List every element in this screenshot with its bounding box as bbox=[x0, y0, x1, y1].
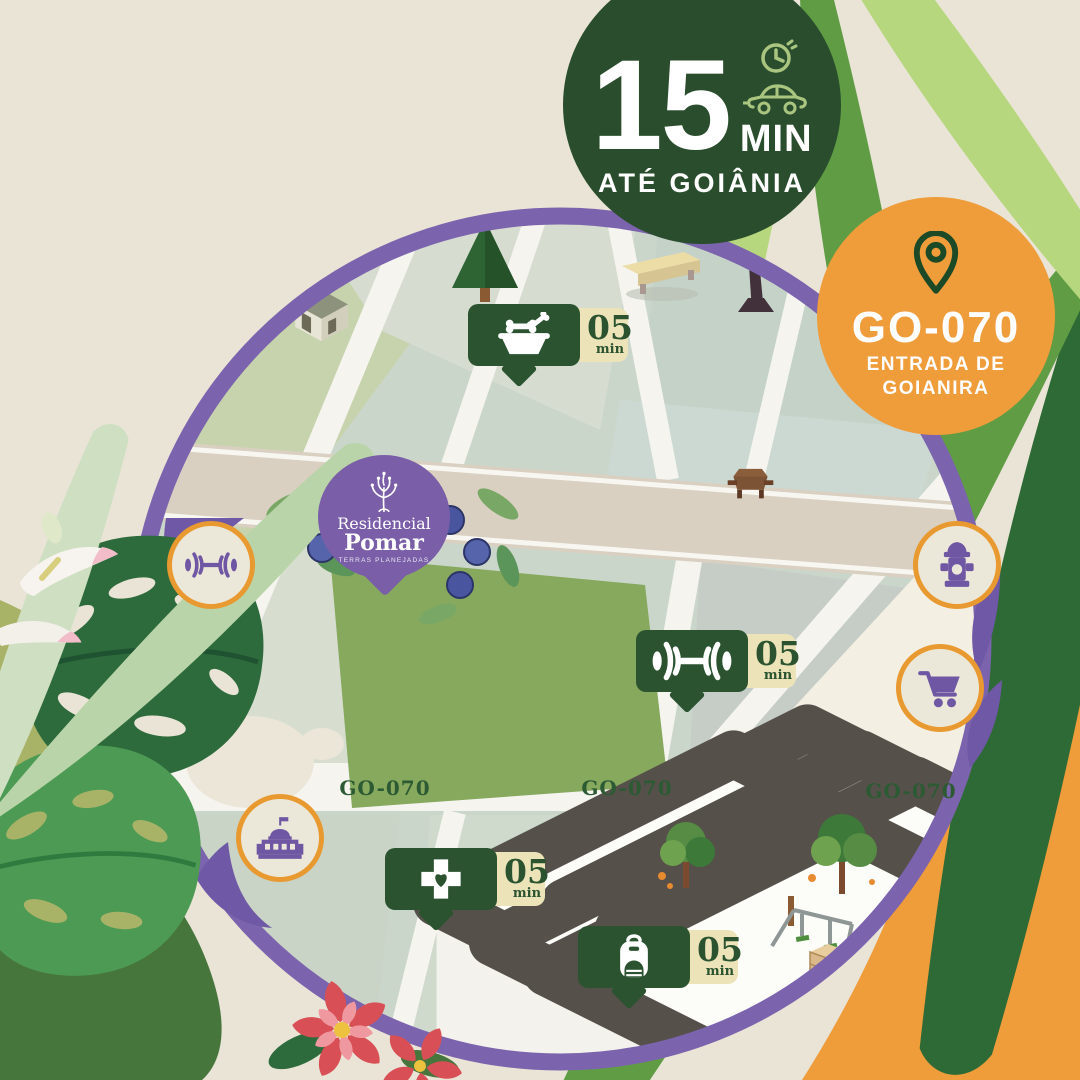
road-label-go070-3: GO-070 bbox=[856, 779, 966, 803]
tree-logo-icon bbox=[359, 470, 409, 514]
marker-health: 05 min bbox=[385, 848, 547, 940]
poi-fire-hydrant bbox=[913, 521, 1001, 609]
marker-pet-place: 05 min bbox=[468, 304, 630, 396]
medical-cross-heart-icon bbox=[416, 854, 466, 904]
dumbbell-icon bbox=[182, 550, 240, 580]
brand-pin: Residencial Pomar TERRAS PLANEJADAS bbox=[318, 455, 450, 579]
highway-badge-title: GO-070 bbox=[852, 303, 1021, 353]
poi-city-hall bbox=[236, 794, 324, 882]
school-backpack-icon bbox=[609, 931, 659, 983]
highway-badge-subtitle-1: ENTRADA DE bbox=[867, 353, 1006, 377]
brand-tagline: TERRAS PLANEJADAS bbox=[339, 557, 430, 564]
marker-unit: min bbox=[513, 887, 541, 900]
marker-gym: 05 min bbox=[636, 630, 798, 722]
map-pin-icon bbox=[910, 231, 962, 295]
fire-hydrant-icon bbox=[936, 540, 978, 590]
marker-time: 05 bbox=[755, 640, 801, 668]
highway-badge-subtitle-2: GOIANIRA bbox=[883, 377, 990, 401]
marker-time: 05 bbox=[504, 858, 550, 886]
highway-badge: GO-070 ENTRADA DE GOIANIRA bbox=[817, 197, 1055, 435]
marker-unit: min bbox=[706, 965, 734, 978]
poi-fitness bbox=[167, 521, 255, 609]
road-label-go070-1: GO-070 bbox=[330, 776, 440, 800]
shopping-cart-icon bbox=[917, 666, 963, 710]
marker-school: 05 min bbox=[578, 926, 740, 1018]
time-badge-caption: ATÉ GOIÂNIA bbox=[598, 168, 806, 199]
city-hall-icon bbox=[255, 815, 305, 861]
time-badge-unit: MIN bbox=[740, 120, 813, 158]
marker-time: 05 bbox=[697, 936, 743, 964]
car-icon bbox=[743, 79, 809, 119]
poi-supermarket bbox=[896, 644, 984, 732]
clock-icon bbox=[754, 38, 798, 78]
brand-name-line2: Pomar bbox=[344, 532, 424, 554]
road-label-go070-2: GO-070 bbox=[572, 776, 682, 800]
marker-unit: min bbox=[596, 343, 624, 356]
promo-poster: GO-070 GO-070 GO-070 15 MIN ATÉ GOIÂNIA … bbox=[0, 0, 1080, 1080]
time-badge-value: 15 bbox=[591, 55, 729, 157]
dumbbell-icon bbox=[648, 639, 736, 683]
pet-bowl-icon bbox=[493, 312, 555, 358]
marker-time: 05 bbox=[587, 314, 633, 342]
marker-unit: min bbox=[764, 669, 792, 682]
